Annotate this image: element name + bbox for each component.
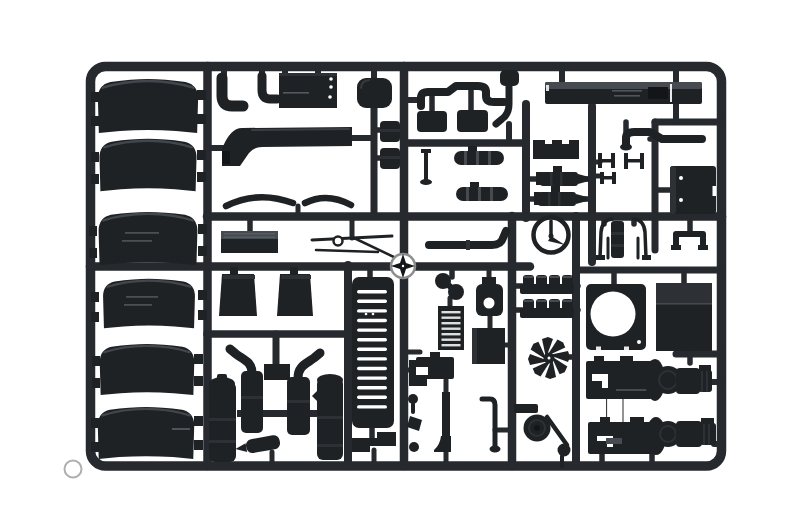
mud-flap-2 — [277, 267, 313, 316]
engine-gearbox-assembly-1 — [586, 356, 712, 401]
alternator — [476, 277, 503, 316]
front-axle-rods — [312, 236, 396, 258]
exhaust-elbow-pipe-2 — [262, 76, 277, 99]
tail-pipe — [429, 231, 506, 250]
hook-rod — [482, 399, 501, 453]
pipe-clamp-1 — [598, 153, 615, 168]
step-tread-plate — [221, 231, 278, 253]
radiator-fan — [528, 337, 570, 379]
wheel-arch-fender-1 — [91, 79, 206, 133]
pulley-bracket — [514, 404, 571, 466]
steering-ring-gauge — [534, 218, 569, 253]
gear-lever-pipe — [496, 70, 519, 124]
sprue-photo — [0, 0, 800, 530]
small-canister-1 — [380, 121, 400, 142]
mud-flap-1 — [219, 267, 257, 316]
wheel-arch-fender-6 — [91, 407, 203, 459]
coolant-pipe — [620, 132, 702, 151]
air-intake-duct — [222, 127, 352, 166]
fan-shroud-plate — [586, 284, 646, 350]
wheel-arch-fender-4 — [91, 279, 207, 328]
roof-panel — [279, 73, 337, 108]
battery-box — [670, 166, 716, 214]
mirror-housing-2 — [457, 110, 488, 132]
engine-cover-panel — [656, 283, 712, 351]
banded-exhaust-section-1 — [454, 146, 504, 165]
wheel-arch-fender-5 — [92, 344, 203, 395]
ball-pin — [409, 442, 419, 452]
small-canister-2 — [380, 148, 400, 169]
leaf-spring-2 — [305, 198, 351, 205]
air-cylinder-1 — [536, 166, 589, 186]
wheel-arch-fender-3 — [89, 212, 207, 265]
side-sill-panel — [545, 82, 702, 104]
radiator-grille — [352, 277, 394, 428]
compressor-block — [472, 328, 505, 364]
support-blade — [434, 392, 451, 452]
banded-exhaust-section-2 — [456, 182, 508, 201]
air-horn — [435, 273, 464, 300]
knob-pin — [408, 394, 418, 412]
air-cylinder-2 — [534, 186, 587, 206]
rounded-tank — [357, 78, 392, 108]
pipe-clamp-3 — [600, 172, 616, 184]
u-bracket — [671, 234, 708, 250]
cylinder-head-row-2 — [520, 299, 574, 318]
air-reservoir-tank-left — [209, 374, 236, 462]
sprue-svg — [0, 0, 800, 530]
mirror-housing-1 — [417, 111, 447, 132]
pipe-clamp-2 — [624, 153, 644, 169]
cylinder-head-row-1 — [520, 275, 574, 294]
exhaust-elbow-pipe-1 — [222, 78, 243, 106]
tube-frame — [596, 219, 651, 260]
small-lever — [420, 149, 432, 185]
intercooler — [438, 306, 464, 350]
cab-step-block — [533, 140, 579, 159]
injection-gate-marker — [391, 254, 415, 278]
wedge-lever — [407, 416, 422, 431]
wheel-arch-fender-2 — [91, 139, 206, 191]
stack-center-block — [264, 364, 290, 380]
injection-gate-marker-corner — [65, 461, 82, 478]
leaf-spring-1 — [226, 197, 293, 206]
engine-gearbox-assembly-2 — [588, 417, 716, 455]
